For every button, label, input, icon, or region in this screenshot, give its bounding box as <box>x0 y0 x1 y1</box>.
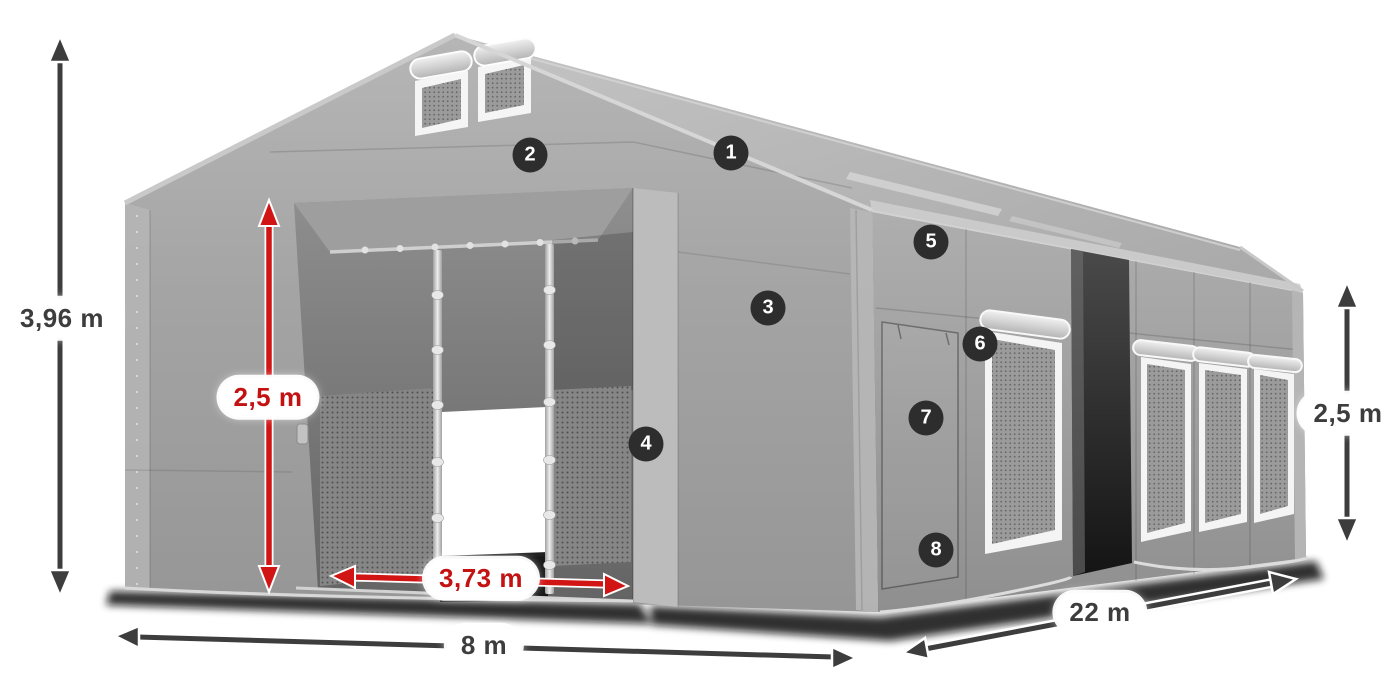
feature-marker-8[interactable]: 8 <box>919 533 954 568</box>
tent-dimension-diagram: 3,96 m 2,5 m 3,73 m 8 m 22 m 2,5 m 1 2 3… <box>0 0 1400 700</box>
feature-marker-4[interactable]: 4 <box>629 427 664 462</box>
front-right-jamb <box>633 188 678 607</box>
feature-marker-7[interactable]: 7 <box>909 401 944 436</box>
label-entrance-height: 2,5 m <box>220 378 317 417</box>
front-left-corner-band <box>125 203 150 590</box>
feature-marker-1[interactable]: 1 <box>714 136 749 171</box>
label-width: 8 m <box>447 626 521 665</box>
feature-marker-6[interactable]: 6 <box>963 327 998 362</box>
feature-marker-2[interactable]: 2 <box>513 138 548 173</box>
side-sliding-entrance <box>1071 249 1132 576</box>
rear-door-pole-left <box>433 250 442 592</box>
tent-render <box>0 0 1400 700</box>
feature-marker-5[interactable]: 5 <box>914 225 949 260</box>
label-length: 22 m <box>1055 593 1144 632</box>
gable-vent-left <box>409 50 474 136</box>
side-window-3 <box>1192 347 1255 532</box>
entrance-strap <box>297 424 308 444</box>
label-total-height: 3,96 m <box>6 299 118 338</box>
feature-marker-3[interactable]: 3 <box>751 291 786 326</box>
rear-door-pole-right <box>545 244 554 594</box>
gable-vent-right <box>473 37 538 122</box>
front-entrance-interior <box>294 188 633 602</box>
interior-mesh-right <box>552 386 631 566</box>
interior-mesh-left <box>320 388 435 586</box>
rear-open-doorway <box>442 407 546 560</box>
label-side-height: 2,5 m <box>1300 394 1397 433</box>
side-window-2 <box>1132 339 1199 542</box>
label-entrance-width: 3,73 m <box>425 559 537 598</box>
